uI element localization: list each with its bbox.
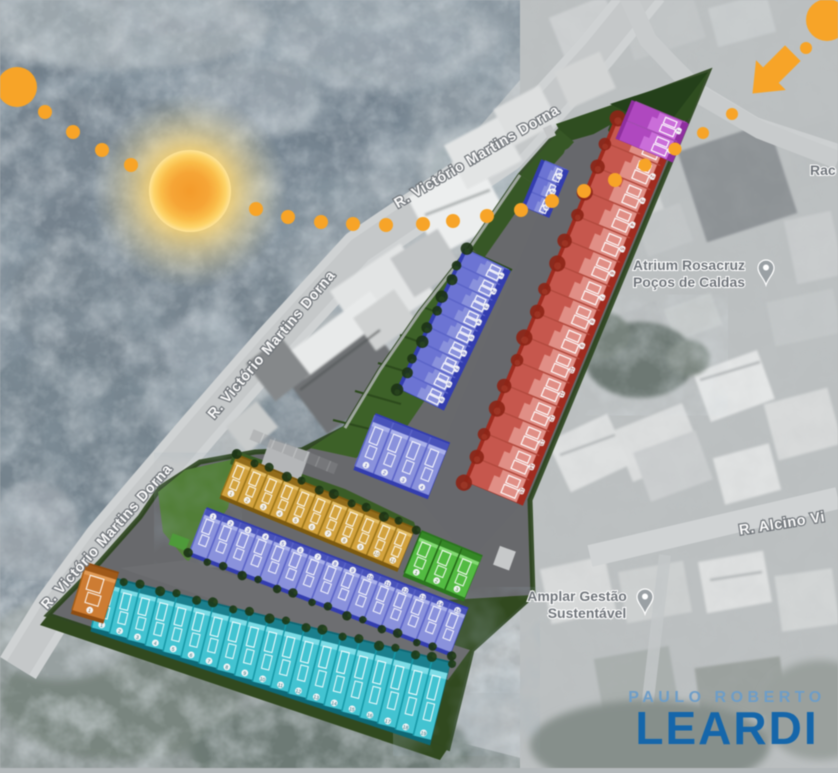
svg-text:LEARDI: LEARDI <box>635 702 818 754</box>
svg-text:Rac: Rac <box>810 162 836 178</box>
svg-text:Poços de Caldas: Poços de Caldas <box>633 274 745 290</box>
svg-text:Atrium Rosacruz: Atrium Rosacruz <box>633 257 745 273</box>
svg-text:Sustentável: Sustentável <box>548 605 627 621</box>
svg-text:Amplar Gestão: Amplar Gestão <box>527 588 627 604</box>
